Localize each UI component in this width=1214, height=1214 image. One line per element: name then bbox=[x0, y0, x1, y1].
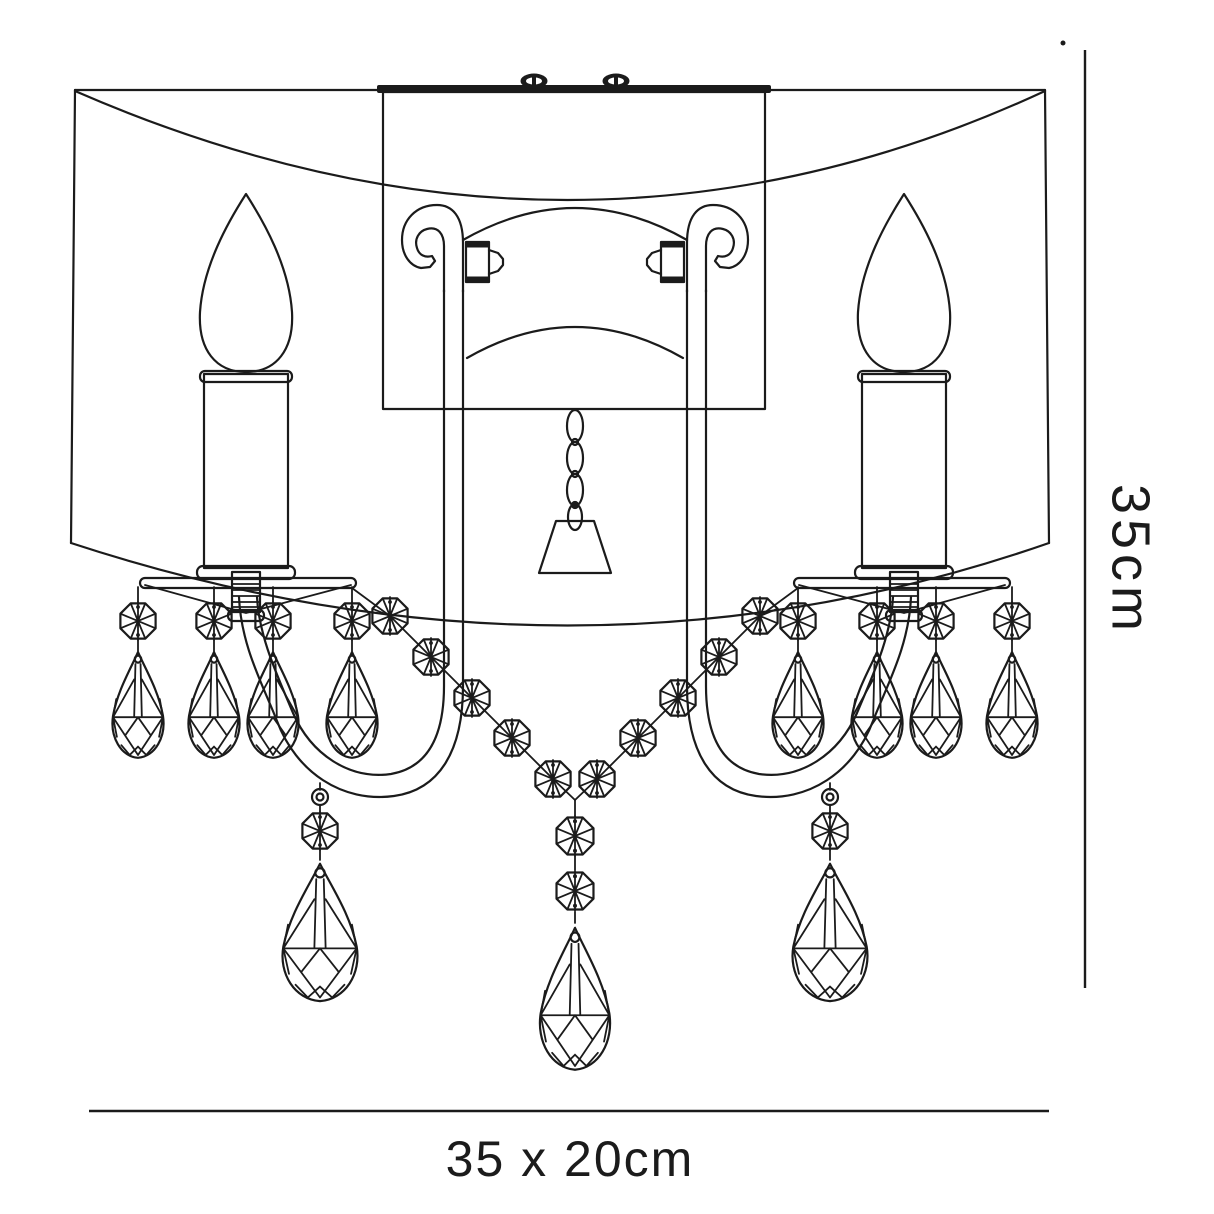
line-drawing-canvas: 35cm 35 x 20cm bbox=[0, 0, 1214, 1214]
height-dimension-label: 35cm bbox=[1101, 484, 1161, 636]
right-candle bbox=[855, 194, 953, 579]
mounting-screw-icon bbox=[521, 74, 548, 89]
teardrop-crystal bbox=[910, 652, 961, 758]
teardrop-crystal bbox=[986, 652, 1037, 758]
wall-backplate bbox=[377, 74, 771, 410]
wall-light-dimension-diagram: 35cm 35 x 20cm bbox=[0, 0, 1214, 1214]
left-bulb bbox=[200, 194, 292, 372]
mounting-screw-icon bbox=[603, 74, 630, 89]
octagon-bead bbox=[494, 719, 529, 757]
octagon-bead bbox=[302, 812, 337, 850]
dimension-annotations: 35cm 35 x 20cm bbox=[89, 41, 1161, 1188]
octagon-bead bbox=[535, 760, 570, 798]
teardrop-crystal bbox=[283, 864, 358, 1001]
octagon-bead bbox=[812, 812, 847, 850]
octagon-bead bbox=[579, 760, 614, 798]
shade-right-edge bbox=[1045, 90, 1049, 543]
teardrop-crystal bbox=[540, 928, 610, 1070]
fabric-shade-outline bbox=[71, 90, 1049, 626]
octagon-bead bbox=[334, 602, 369, 640]
right-arm-curl-inner bbox=[706, 290, 893, 775]
dimension-dot bbox=[1061, 41, 1066, 46]
octagon-bead bbox=[994, 602, 1029, 640]
left-candle-sleeve bbox=[204, 374, 288, 568]
bolt-icon bbox=[647, 242, 684, 282]
octagon-bead bbox=[557, 816, 594, 856]
left-candle bbox=[197, 194, 295, 579]
width-dimension-label: 35 x 20cm bbox=[446, 1131, 695, 1187]
octagon-bead bbox=[780, 602, 815, 640]
backplate-box bbox=[383, 92, 765, 409]
teardrop-crystal bbox=[772, 652, 823, 758]
left-arm-curl-inner bbox=[257, 290, 444, 775]
backplate-top-bar bbox=[377, 85, 771, 93]
octagon-bead bbox=[918, 602, 953, 640]
octagon-bead bbox=[620, 719, 655, 757]
octagon-bead bbox=[557, 871, 594, 911]
teardrop-crystal bbox=[188, 652, 239, 758]
arm-fixing-bolts bbox=[466, 242, 684, 282]
left-arm-hook bbox=[402, 205, 463, 292]
teardrop-crystal bbox=[793, 864, 868, 1001]
right-bulb bbox=[858, 194, 950, 372]
center-pull-chain bbox=[539, 410, 611, 573]
octagon-bead bbox=[742, 597, 777, 635]
right-arm-hook bbox=[687, 205, 748, 292]
backplate-upper-arch bbox=[463, 208, 687, 240]
right-arm-curl-outer bbox=[687, 290, 911, 797]
teardrop-crystal bbox=[112, 652, 163, 758]
shade-left-edge bbox=[71, 90, 75, 543]
right-candle-sleeve bbox=[862, 374, 946, 568]
octagon-bead bbox=[120, 602, 155, 640]
octagon-bead bbox=[660, 679, 695, 717]
octagon-bead bbox=[454, 679, 489, 717]
backplate-lower-arch bbox=[467, 327, 683, 358]
shade-top-rim-curve bbox=[75, 91, 1045, 200]
teardrop-crystal bbox=[326, 652, 377, 758]
left-arm-curl-outer bbox=[239, 290, 463, 797]
octagon-bead bbox=[196, 602, 231, 640]
pull-shade-trapezoid bbox=[539, 521, 611, 573]
bolt-icon bbox=[466, 242, 503, 282]
